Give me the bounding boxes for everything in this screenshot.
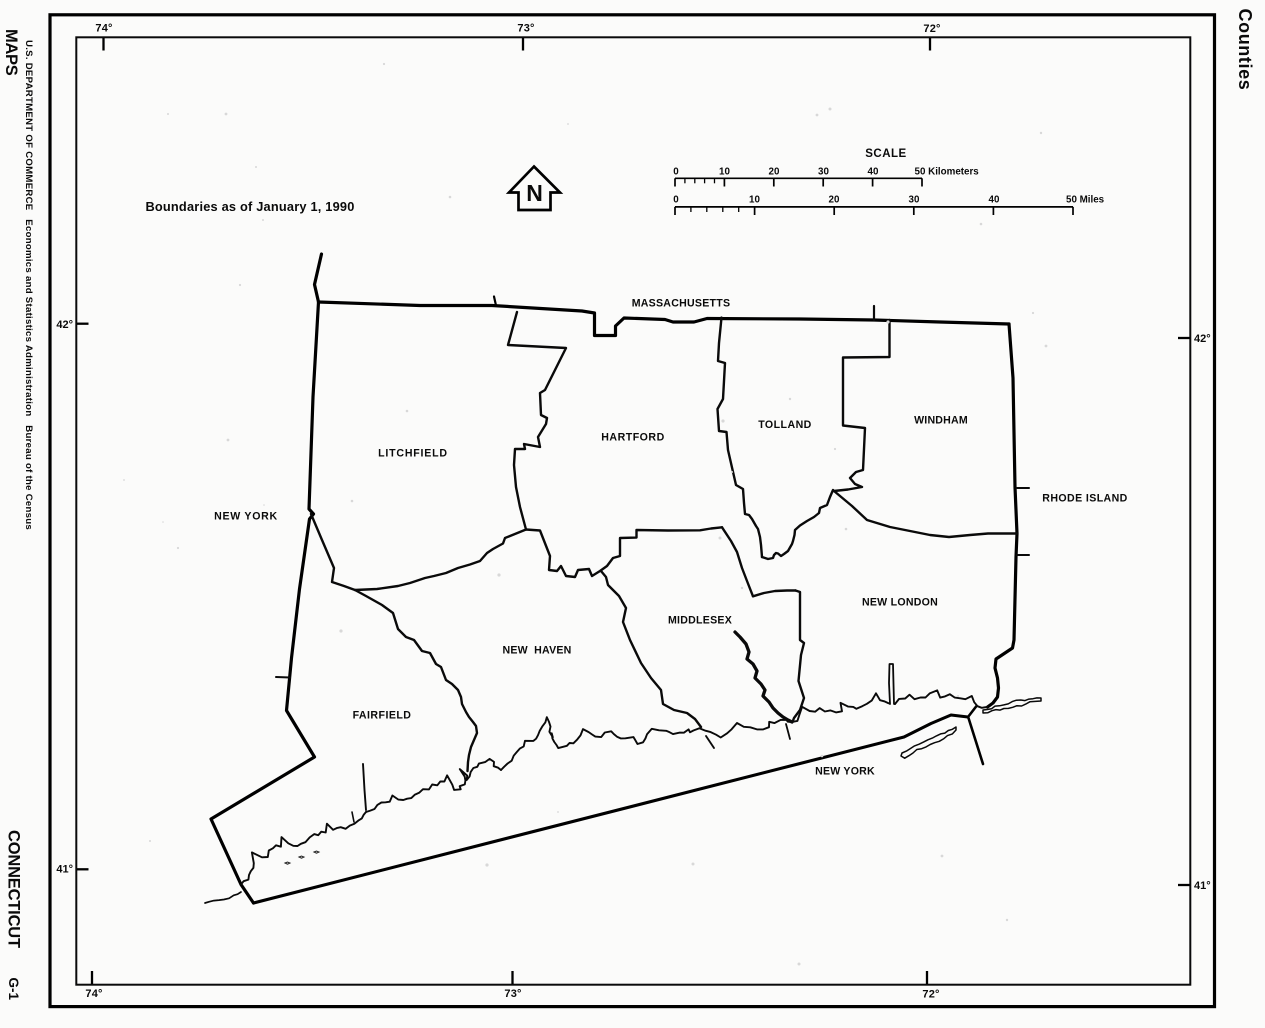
svg-text:CONNECTICUT: CONNECTICUT [5,830,23,948]
svg-text:HARTFORD: HARTFORD [601,432,664,444]
svg-text:0: 0 [673,167,679,178]
svg-text:MAPS: MAPS [2,29,20,76]
svg-text:TOLLAND: TOLLAND [758,419,812,431]
svg-text:10: 10 [749,195,760,206]
svg-text:50 Miles: 50 Miles [1066,195,1105,206]
svg-text:U.S. DEPARTMENT OF COMMERCE: U.S. DEPARTMENT OF COMMERCE Economics an… [23,40,34,530]
svg-text:Counties: Counties [1235,9,1255,91]
svg-text:30: 30 [818,167,829,178]
svg-text:MASSACHUSETTS: MASSACHUSETTS [632,298,731,310]
svg-text:73°: 73° [504,988,521,1000]
svg-text:10: 10 [719,167,730,178]
svg-text:Boundaries as of January 1, 19: Boundaries as of January 1, 1990 [145,199,354,214]
svg-text:74°: 74° [95,23,112,35]
svg-text:41°: 41° [1194,880,1211,892]
svg-text:73°: 73° [517,23,534,35]
svg-text:40: 40 [989,195,1000,206]
svg-text:41°: 41° [56,864,73,876]
svg-text:MIDDLESEX: MIDDLESEX [668,615,732,627]
svg-text:RHODE ISLAND: RHODE ISLAND [1042,493,1127,505]
svg-text:42°: 42° [1194,333,1211,345]
svg-text:WINDHAM: WINDHAM [914,415,968,427]
svg-text:74°: 74° [85,988,102,1000]
svg-text:72°: 72° [923,23,940,35]
svg-text:20: 20 [769,167,780,178]
svg-text:FAIRFIELD: FAIRFIELD [353,710,412,722]
svg-text:NEW HAVEN: NEW HAVEN [503,645,572,657]
svg-text:50 Kilometers: 50 Kilometers [915,167,980,178]
svg-text:LITCHFIELD: LITCHFIELD [378,448,448,460]
svg-text:40: 40 [868,167,879,178]
svg-text:42°: 42° [56,319,73,331]
svg-text:NEW YORK: NEW YORK [815,766,875,778]
svg-text:30: 30 [909,195,920,206]
svg-text:SCALE: SCALE [865,148,906,160]
svg-text:N: N [526,180,543,206]
svg-text:72°: 72° [922,989,939,1001]
svg-text:0: 0 [673,195,679,206]
svg-text:NEW LONDON: NEW LONDON [862,597,938,609]
svg-text:20: 20 [829,195,840,206]
svg-text:G-1: G-1 [6,978,21,1001]
svg-text:NEW YORK: NEW YORK [214,511,278,523]
